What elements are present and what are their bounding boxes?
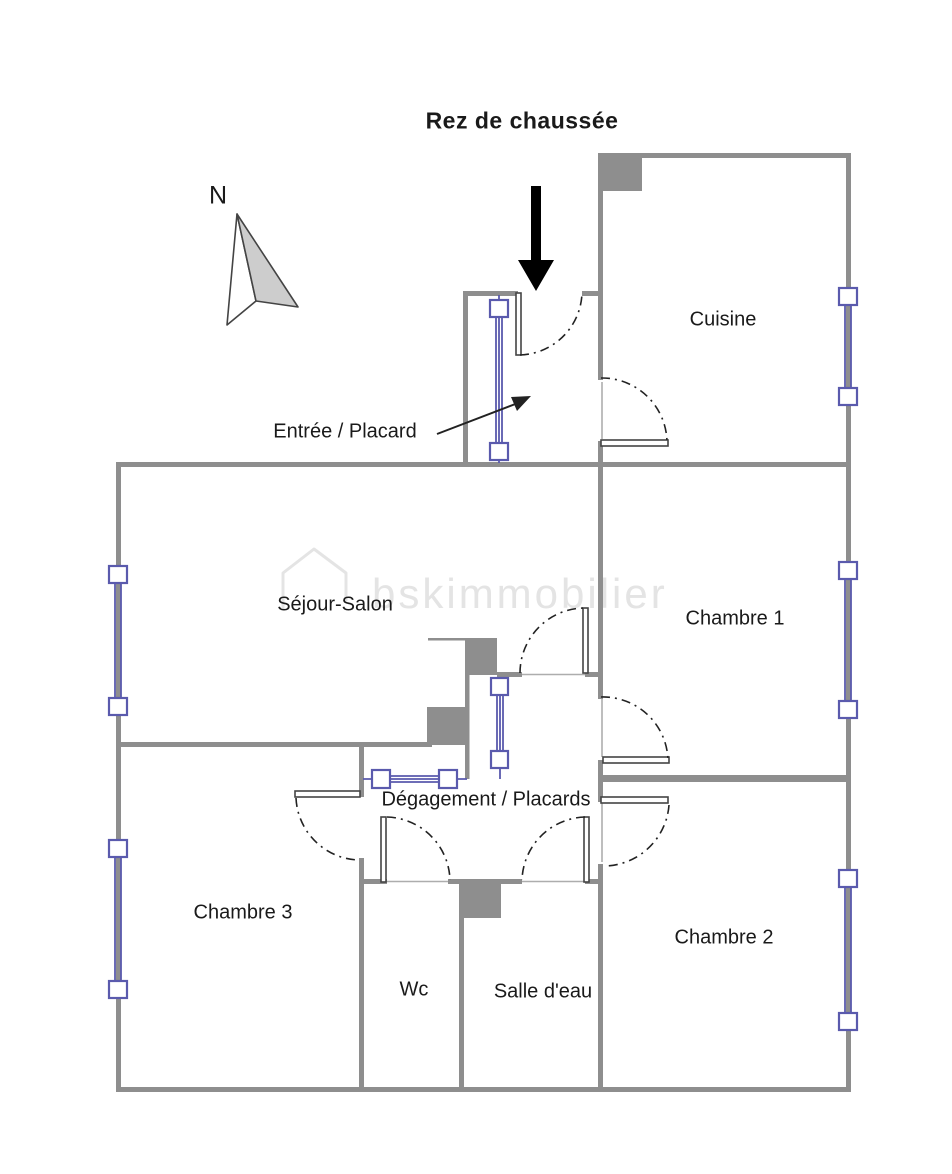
watermark-text: bskimmobilier <box>372 570 668 617</box>
annotation-arrow <box>437 396 531 434</box>
room-label-salle-eau: Salle d'eau <box>494 981 592 1004</box>
room-label-sejour: Séjour-Salon <box>277 594 393 617</box>
room-label-chambre3: Chambre 3 <box>194 902 293 925</box>
placard-degagement-vertical <box>491 677 508 779</box>
room-label-chambre2: Chambre 2 <box>675 927 774 950</box>
compass-needle <box>227 214 298 325</box>
room-label-chambre1: Chambre 1 <box>686 608 785 631</box>
entry-arrow <box>518 186 554 291</box>
closet-block-a <box>465 638 497 675</box>
kitchen-chimney-block <box>600 155 642 191</box>
page-title: Rez de chaussée <box>426 108 619 135</box>
placard-entree <box>490 295 508 463</box>
room-label-entree: Entrée / Placard <box>273 421 416 444</box>
door-chambre2 <box>601 797 669 866</box>
floor-plan: bskimmobilier <box>0 0 952 1174</box>
room-label-cuisine: Cuisine <box>690 309 757 332</box>
placard-degagement-horizontal <box>363 770 467 788</box>
room-label-wc: Wc <box>400 979 429 1002</box>
closet-block-b <box>427 707 467 745</box>
door-sejour <box>520 608 588 673</box>
door-chambre1 <box>601 697 669 763</box>
room-label-degagement: Dégagement / Placards <box>381 789 590 812</box>
door-cuisine <box>601 378 668 446</box>
compass-north-label: N <box>209 182 227 211</box>
door-salle-eau <box>522 817 589 882</box>
bathroom-wall-block <box>464 881 501 918</box>
floor-plan-drawing: bskimmobilier <box>0 0 952 1174</box>
door-chambre3 <box>295 791 360 860</box>
door-wc <box>381 817 450 882</box>
door-entree <box>516 293 582 355</box>
